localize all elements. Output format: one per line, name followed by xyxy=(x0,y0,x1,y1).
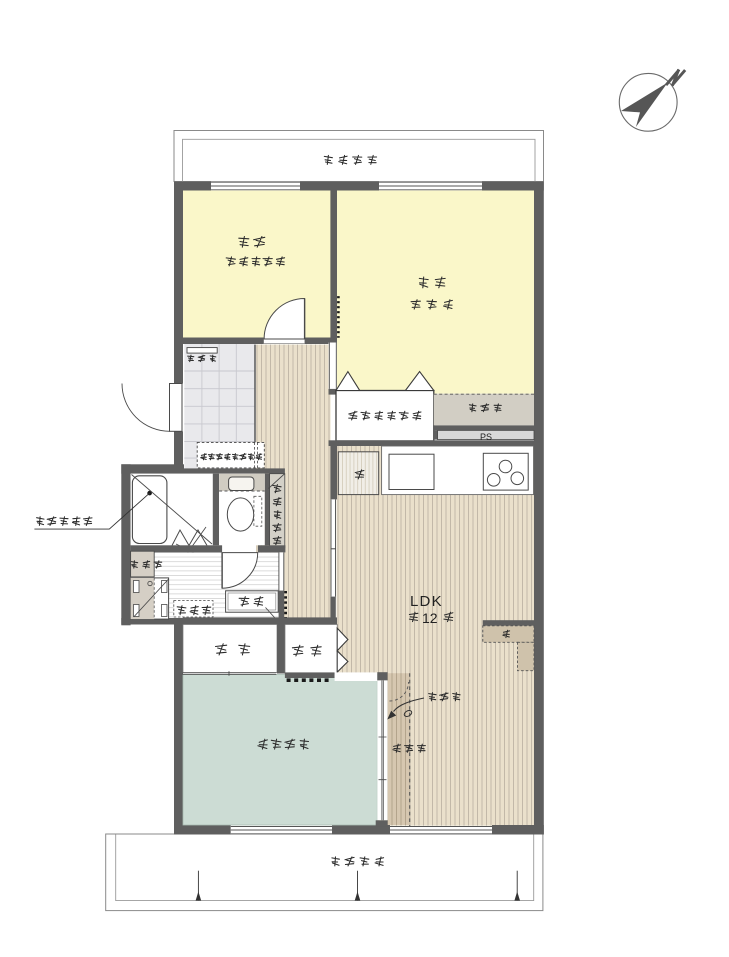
svg-text:LDK: LDK xyxy=(410,593,443,610)
svg-text:12: 12 xyxy=(422,610,438,626)
